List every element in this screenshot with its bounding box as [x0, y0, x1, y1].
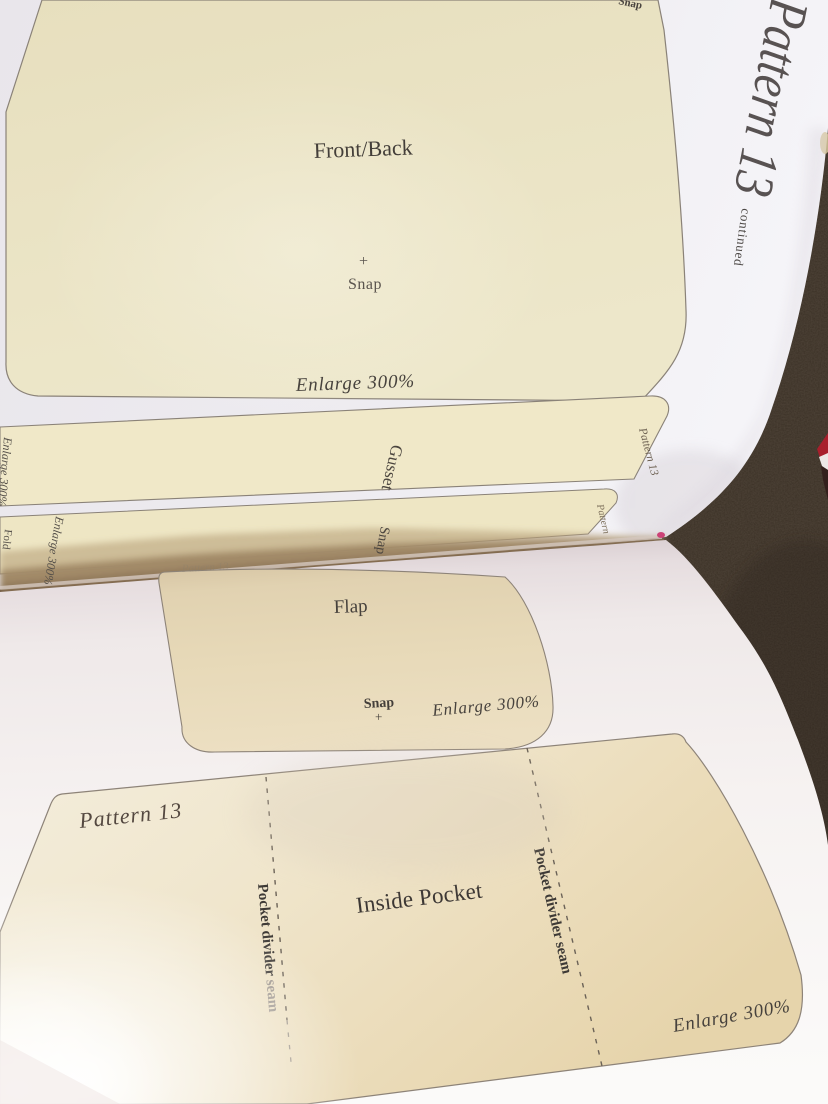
svg-text:Fold: Fold	[0, 529, 14, 551]
svg-text:Pattern 13: Pattern 13	[181, 561, 230, 576]
svg-text:Enlarge 300%: Enlarge 300%	[294, 371, 415, 396]
svg-text:+: +	[359, 253, 368, 270]
svg-text:Flap: Flap	[333, 596, 367, 618]
svg-text:+: +	[375, 709, 382, 724]
svg-text:Snap: Snap	[348, 276, 382, 293]
svg-text:Front/Back: Front/Back	[313, 135, 413, 163]
